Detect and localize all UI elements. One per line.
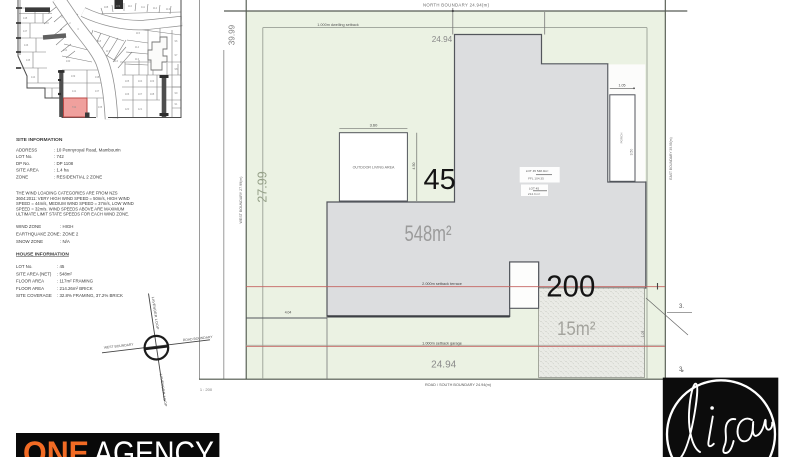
svg-text:SITE AREA (NET): SITE AREA (NET) (16, 271, 52, 276)
svg-text:DP No.: DP No. (16, 161, 30, 166)
svg-text:4.50: 4.50 (412, 163, 416, 170)
svg-text:LOT No.: LOT No. (16, 264, 33, 269)
svg-text:120: 120 (125, 107, 130, 111)
svg-text:91: 91 (175, 102, 178, 106)
svg-text:: 742: : 742 (54, 154, 64, 159)
svg-text:ONE: ONE (23, 435, 89, 457)
svg-text:96: 96 (175, 39, 178, 43)
svg-text:145: 145 (26, 58, 31, 62)
svg-text:99: 99 (175, 91, 178, 95)
svg-text:742: 742 (72, 105, 77, 109)
svg-text:144: 144 (31, 75, 36, 79)
svg-text:3604:2011: VERY HIGH WIND SPEE: 3604:2011: VERY HIGH WIND SPEED = 50m/s,… (16, 196, 130, 201)
svg-text:104: 104 (138, 79, 143, 83)
svg-text:EARTHQUAKE ZONE: EARTHQUAKE ZONE (16, 232, 60, 237)
svg-text:EAST BOUNDARY 39.99(m): EAST BOUNDARY 39.99(m) (669, 137, 673, 179)
svg-text:113: 113 (135, 57, 140, 61)
svg-text:LOT 45: LOT 45 (529, 187, 540, 191)
svg-text:OUTDOOR LIVING AREA: OUTDOOR LIVING AREA (353, 166, 395, 170)
svg-text:FLOOR AREA: FLOOR AREA (16, 279, 44, 284)
svg-text:HOUSE INFORMATION: HOUSE INFORMATION (16, 252, 69, 258)
svg-text:4.04: 4.04 (285, 311, 292, 315)
svg-text:148: 148 (23, 16, 28, 20)
svg-text:130: 130 (66, 59, 71, 63)
svg-text:ZONE: ZONE (16, 174, 28, 179)
svg-text:FFL 104.35: FFL 104.35 (528, 177, 544, 181)
svg-text:141: 141 (72, 89, 77, 93)
svg-text:LOT 45 548.0m²: LOT 45 548.0m² (526, 169, 548, 173)
svg-text:SPEED = 44m/s, MEDIUM WIND SPE: SPEED = 44m/s, MEDIUM WIND SPEED = 37m/s… (16, 201, 134, 206)
svg-text:2.000m setback terrace: 2.000m setback terrace (422, 282, 462, 286)
svg-text:LOT No.: LOT No. (16, 154, 33, 159)
svg-text:135: 135 (98, 105, 103, 109)
svg-text:LAVENDER LOOP: LAVENDER LOOP (159, 374, 168, 408)
svg-text:117: 117 (106, 49, 111, 53)
svg-text:138: 138 (95, 75, 100, 79)
svg-text:24.94: 24.94 (431, 360, 456, 371)
svg-text:FLOOR AREA: FLOOR AREA (16, 286, 44, 291)
svg-text:: 117m² FRAMING: : 117m² FRAMING (57, 279, 94, 284)
svg-text:106: 106 (125, 92, 130, 96)
svg-text:116: 116 (114, 59, 119, 63)
svg-text:: 214.26m² BRICK: : 214.26m² BRICK (57, 286, 93, 291)
svg-text:115: 115 (136, 31, 141, 35)
svg-text:103: 103 (150, 79, 155, 83)
svg-text:109: 109 (116, 4, 121, 8)
svg-text:121: 121 (138, 107, 143, 111)
svg-text:: 45: : 45 (57, 264, 65, 269)
svg-text:1.05: 1.05 (641, 331, 645, 338)
svg-text:105: 105 (125, 79, 130, 83)
svg-text:200: 200 (546, 269, 595, 304)
svg-text:137: 137 (95, 89, 100, 93)
svg-text:113: 113 (166, 7, 171, 11)
svg-text:97: 97 (175, 53, 178, 57)
svg-text:LAVENDER LOOP: LAVENDER LOOP (151, 297, 160, 331)
svg-text:: RESIDENTIAL 2 ZONE: : RESIDENTIAL 2 ZONE (54, 174, 102, 179)
svg-text:45: 45 (424, 164, 456, 196)
svg-text:108: 108 (150, 92, 155, 96)
svg-text:: HIGH: : HIGH (60, 224, 73, 229)
svg-text:ULTIMATE LIMIT STATE SPEEDS FO: ULTIMATE LIMIT STATE SPEEDS FOR EACH WIN… (16, 212, 129, 217)
svg-text:: N/A: : N/A (60, 239, 70, 244)
svg-text:107: 107 (138, 92, 143, 96)
svg-text:112: 112 (153, 6, 158, 10)
svg-text:: 10 Pennyroyal Road, Mambour: : 10 Pennyroyal Road, Mambourin (54, 148, 121, 153)
svg-text:NORTH BOUNDARY 24.94(m): NORTH BOUNDARY 24.94(m) (423, 3, 490, 8)
svg-text:: 32.8% FRAMING, 37.2% BRICK: : 32.8% FRAMING, 37.2% BRICK (57, 293, 123, 298)
svg-text:1.000m setback garage: 1.000m setback garage (422, 341, 462, 345)
svg-text:AGENCY: AGENCY (94, 435, 214, 457)
svg-text:: ZONE 2: : ZONE 2 (60, 232, 79, 237)
svg-text:3.: 3. (679, 304, 684, 310)
svg-text:: 1.4 ha: : 1.4 ha (54, 168, 69, 173)
svg-text:548m²: 548m² (405, 221, 452, 246)
svg-text:1.05: 1.05 (619, 84, 626, 88)
svg-text:THE WIND LOADING CATEGORIES AR: THE WIND LOADING CATEGORIES ARE FROM NZS (16, 191, 118, 196)
svg-text:SNOW ZONE: SNOW ZONE (16, 239, 43, 244)
svg-text:114: 114 (135, 45, 140, 49)
svg-text:SITE INFORMATION: SITE INFORMATION (16, 137, 63, 143)
svg-text:214.3 m²: 214.3 m² (528, 192, 540, 196)
svg-text:PORCH: PORCH (620, 133, 624, 144)
svg-text:SPEED = 32m/s. WIND SPEEDS ABO: SPEED = 32m/s. WIND SPEEDS ABOVE ARE MAX… (16, 206, 125, 211)
svg-text:SITE AREA: SITE AREA (16, 168, 39, 173)
svg-text:SITE COVERAGE: SITE COVERAGE (16, 293, 52, 298)
svg-text:WEST BOUNDARY: WEST BOUNDARY (104, 342, 135, 349)
svg-text:ROAD / SOUTH BOUNDARY 24.94(m): ROAD / SOUTH BOUNDARY 24.94(m) (425, 383, 492, 387)
svg-text:15m²: 15m² (557, 319, 596, 340)
svg-text:3.60: 3.60 (370, 123, 379, 128)
svg-text:147: 147 (23, 29, 28, 33)
svg-text:131: 131 (63, 48, 68, 52)
svg-text:WEST BOUNDARY 27.99(m): WEST BOUNDARY 27.99(m) (239, 177, 243, 224)
svg-text:39.99: 39.99 (228, 24, 237, 45)
svg-text:27.99: 27.99 (256, 171, 270, 202)
svg-text:ADDRESS: ADDRESS (16, 148, 37, 153)
svg-text:: DP 1108: : DP 1108 (54, 161, 74, 166)
svg-text:111: 111 (141, 5, 145, 9)
svg-text:1.000m dwelling setback: 1.000m dwelling setback (317, 23, 359, 27)
svg-text:110: 110 (128, 4, 133, 8)
svg-text:108: 108 (104, 5, 109, 9)
svg-text:3.50: 3.50 (630, 149, 634, 156)
svg-text:WIND ZONE: WIND ZONE (16, 224, 41, 229)
svg-text:1 : 200: 1 : 200 (200, 387, 213, 392)
svg-text:118: 118 (97, 39, 102, 43)
svg-text:: 548m²: : 548m² (57, 271, 72, 276)
svg-text:98: 98 (175, 67, 178, 71)
svg-text:139: 139 (71, 74, 76, 78)
svg-text:146: 146 (24, 43, 29, 47)
svg-text:24.94: 24.94 (432, 35, 453, 44)
svg-text:.: . (48, 91, 49, 94)
